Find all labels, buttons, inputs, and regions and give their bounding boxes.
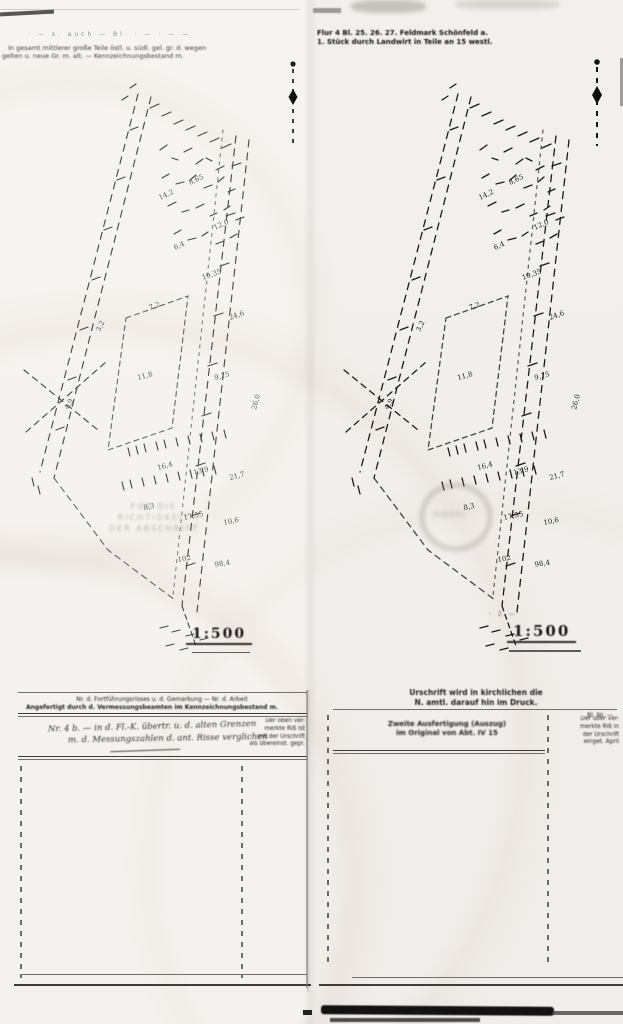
page-header-line2: 1. Stück durch Landwirt in Teile an 15 w… <box>317 38 542 47</box>
page-fold-shadow <box>303 0 317 1024</box>
svg-text:7,2: 7,2 <box>148 301 161 312</box>
svg-text:26,0: 26,0 <box>250 393 262 410</box>
scan-black-band <box>330 1018 480 1022</box>
scale-label: 1:500 <box>507 622 576 643</box>
svg-text:16,4: 16,4 <box>156 460 174 472</box>
survey-field-sketch: 14,28,6512,06,419,357,224,611,89,153,24,… <box>10 80 290 660</box>
svg-text:16,4: 16,4 <box>476 460 494 472</box>
scale-underline <box>192 652 250 653</box>
svg-text:11,8: 11,8 <box>136 370 153 382</box>
table-note-column: Der oben ver-merkte Riß istmit der Ursch… <box>243 718 305 749</box>
svg-text:8,65: 8,65 <box>187 173 205 187</box>
scale-note-marks: · 2 — <box>489 610 517 618</box>
svg-text:13,9: 13,9 <box>192 465 209 477</box>
svg-text:26,0: 26,0 <box>570 393 582 410</box>
table-column-dashed-divider <box>241 766 243 978</box>
page-header-line2: gelten u. neue Gr. m. alt. — Kennzeichnu… <box>2 52 217 60</box>
svg-text:102: 102 <box>177 554 192 564</box>
scale-underline <box>509 650 581 652</box>
svg-text:8,65: 8,65 <box>507 173 525 187</box>
svg-text:7,2: 7,2 <box>468 301 481 312</box>
scan-black-band <box>552 1011 623 1015</box>
table-header-line2: N. amtl. darauf hin im Druck. <box>381 698 571 707</box>
entry-line2: im Original von Abt. IV 15 <box>367 729 527 737</box>
svg-text:98,4: 98,4 <box>214 558 231 569</box>
svg-text:3,2: 3,2 <box>415 319 427 332</box>
table-left-dashed-border <box>20 766 22 978</box>
svg-text:21,7: 21,7 <box>548 470 565 482</box>
scanned-survey-sheet: · — s. auch — Bl. · — · — — In gesamt mi… <box>0 0 623 1024</box>
scan-smudge <box>313 8 341 13</box>
table-column-dashed-divider <box>547 715 549 967</box>
scan-black-band <box>321 1005 554 1016</box>
svg-text:14,2: 14,2 <box>477 188 495 202</box>
scale-label: 1:500 <box>186 626 252 645</box>
table-left-dashed-border <box>327 715 329 967</box>
svg-text:98,4: 98,4 <box>534 558 551 569</box>
svg-text:17,55: 17,55 <box>503 510 524 522</box>
record-table: Nr. d. Fortführungsrisses u. d. Gemarkun… <box>14 690 311 992</box>
table-header-line1: Nr. d. Fortführungsrisses u. d. Gemarkun… <box>42 696 282 704</box>
table-header-line2: Angefertigt durch d. Vermessungsbeamten … <box>26 704 276 712</box>
ghost-stamp-text: FÜR DIE RICHTIGKEIT DER ABSCHRIFT <box>95 501 213 535</box>
svg-text:102: 102 <box>497 554 512 564</box>
svg-text:11,8: 11,8 <box>456 370 473 382</box>
page-header-line1: Flur 4 Bl. 25. 26. 27. Feldmark Schönfel… <box>317 29 552 38</box>
svg-text:21,7: 21,7 <box>228 470 245 482</box>
svg-text:12,0: 12,0 <box>212 218 230 232</box>
scan-smudge <box>455 0 560 9</box>
svg-text:14,2: 14,2 <box>157 188 175 202</box>
svg-text:6,4: 6,4 <box>172 240 186 252</box>
handwriting-flourish <box>110 746 180 752</box>
table-header-line1: Urschrift wird in kirchlichen die <box>381 688 571 697</box>
record-table: Urschrift wird in kirchlichen die N. amt… <box>319 687 623 991</box>
svg-text:12,0: 12,0 <box>532 218 550 232</box>
survey-field-sketch: 14,28,6512,06,419,357,224,611,89,153,24,… <box>330 80 610 660</box>
svg-text:13,9: 13,9 <box>512 465 529 477</box>
svg-text:10,6: 10,6 <box>543 516 560 527</box>
svg-text:6,4: 6,4 <box>492 240 506 252</box>
page-right-copy: Flur 4 Bl. 25. 26. 27. Feldmark Schönfel… <box>311 0 623 1024</box>
scan-smudge <box>351 0 426 13</box>
entry-handwriting-line2: m. d. Messungszahlen d. ant. Risse vergl… <box>68 733 233 746</box>
page-left-copy: · — s. auch — Bl. · — · — — In gesamt mi… <box>0 0 311 1024</box>
ghost-seal-stamp: SIEGEL <box>419 482 493 552</box>
svg-text:3,2: 3,2 <box>95 319 107 332</box>
svg-text:9,15: 9,15 <box>213 370 230 382</box>
svg-text:9,15: 9,15 <box>533 370 550 382</box>
table-note-column: Der über ver-merkte Riß inder Urschrifte… <box>553 716 619 747</box>
page-header-line1: In gesamt mittlerer große Teile östl. u.… <box>8 44 248 52</box>
entry-line1: Zweite Ausfertigung (Auszug) <box>367 720 527 728</box>
svg-text:10,6: 10,6 <box>223 516 240 527</box>
scan-mark-bottom-left-page <box>303 1010 312 1015</box>
header-faint-line: · — s. auch — Bl. · — · — — <box>28 31 253 38</box>
